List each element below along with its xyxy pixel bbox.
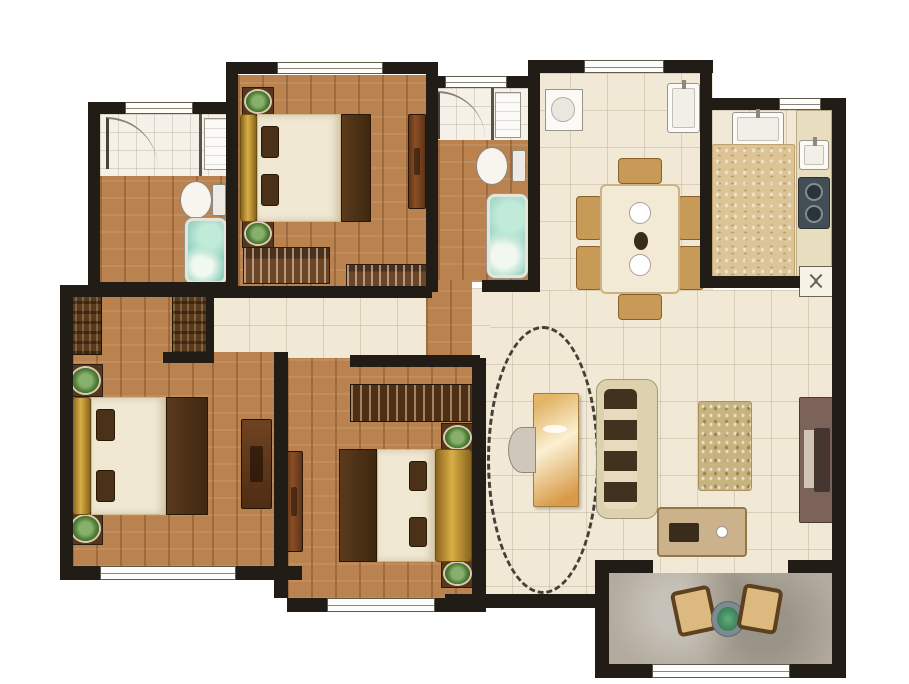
window-bedroom3 <box>327 598 435 612</box>
bath2-bathtub <box>487 194 528 278</box>
living-tv-cabinet <box>799 397 833 523</box>
wall-living-bottom <box>445 594 608 608</box>
master-headboard <box>72 397 91 515</box>
wall-master-top <box>60 285 212 297</box>
living-coffee-table <box>657 507 747 557</box>
bedroom3-wardrobe <box>350 384 478 422</box>
window-master <box>100 566 236 580</box>
master-pillow-b <box>96 470 115 502</box>
master-blanket <box>166 397 208 515</box>
wall-balcony-left <box>595 560 609 678</box>
living-desk <box>533 393 579 507</box>
bath1-bathtub <box>185 218 227 284</box>
wall-master-door-stub <box>163 352 214 363</box>
wall-balcony-top-left <box>595 560 653 573</box>
window-kitchen <box>779 98 821 110</box>
bath2-toilet <box>474 146 526 186</box>
wall-bath1-left <box>88 102 100 294</box>
bath2-shelf <box>495 92 521 138</box>
dining-centerpiece <box>634 232 648 250</box>
bed2-pillow-b <box>261 174 279 206</box>
kitchen-island <box>712 144 795 278</box>
dining-chair-top <box>618 158 662 184</box>
bath1-divider <box>199 114 202 176</box>
window-bath1 <box>125 102 193 114</box>
dining-chair-left-1 <box>576 196 602 240</box>
bed3-blanket <box>339 449 377 562</box>
wall-closet-nook <box>206 288 214 354</box>
bed2-pillow-a <box>261 126 279 158</box>
bedroom2-bed <box>240 114 371 222</box>
window-bedroom2 <box>277 62 383 74</box>
living-rug <box>698 401 752 491</box>
hall-vanity <box>667 83 700 133</box>
wall-kitchen-top <box>700 98 846 110</box>
living-desk-chair <box>508 427 536 473</box>
floor-plan <box>0 0 909 684</box>
bath2-divider <box>491 88 494 140</box>
wall-bed3-right <box>472 358 486 612</box>
bedroom2-bench-2 <box>346 264 433 288</box>
bath1-toilet <box>178 180 226 220</box>
bedroom2-nightstand-top <box>242 87 274 116</box>
wall-master-left <box>60 285 73 580</box>
wall-master-bed3-divider <box>274 352 288 598</box>
wall-bath2-left <box>426 62 438 292</box>
wall-balcony-right <box>832 560 846 678</box>
dining-plate-a <box>629 202 651 224</box>
wall-kitchen-left <box>700 98 712 288</box>
bedroom3-bed <box>339 449 472 562</box>
window-dining <box>584 60 664 73</box>
dining-plate-b <box>629 254 651 276</box>
master-wardrobe-right <box>172 293 209 355</box>
wall-bed2-left <box>226 62 238 294</box>
window-balcony <box>652 664 790 678</box>
bed2-headboard <box>240 114 257 222</box>
wall-bed3-top <box>350 355 480 367</box>
wall-bed2-bottom <box>214 286 432 298</box>
window-bath2 <box>445 76 507 88</box>
bath1-shelf <box>204 118 227 170</box>
master-pillow-a <box>96 409 115 441</box>
bedroom2-bench <box>243 247 330 284</box>
tv-stand-panel <box>804 430 814 488</box>
dining-set <box>576 158 704 320</box>
kitchen-sink <box>732 112 784 146</box>
master-dresser <box>241 419 272 509</box>
wall-bath2-bottom <box>482 280 540 292</box>
bed3-pillow-b <box>409 517 427 547</box>
master-nightstand-top <box>68 364 103 397</box>
hall-washbasin <box>545 89 583 131</box>
dining-chair-bottom <box>618 294 662 320</box>
kitchen-cooktop <box>798 177 830 229</box>
master-bed <box>72 397 208 515</box>
bedroom3-nightstand-bottom <box>441 559 474 588</box>
balcony-chair-right <box>736 583 783 635</box>
wall-bath2-right <box>528 73 540 292</box>
living-sofa <box>596 379 658 519</box>
bedroom3-nightstand-top <box>441 423 474 452</box>
tv-screen <box>814 428 830 492</box>
bed3-pillow-a <box>409 461 427 491</box>
bed2-blanket <box>341 114 371 222</box>
bedroom2-nightstand-bottom <box>242 219 274 248</box>
wall-kitchen-bottom <box>700 276 800 288</box>
bed3-headboard <box>435 449 472 562</box>
kitchen-prep-sink <box>799 140 829 170</box>
dining-chair-left-2 <box>576 246 602 290</box>
master-nightstand-bottom <box>68 512 103 545</box>
bedroom2-sideboard <box>408 114 426 209</box>
kitchen-sliding-door <box>799 266 833 297</box>
wall-right-exterior <box>832 98 846 574</box>
bedroom2-door-floor <box>426 280 472 360</box>
